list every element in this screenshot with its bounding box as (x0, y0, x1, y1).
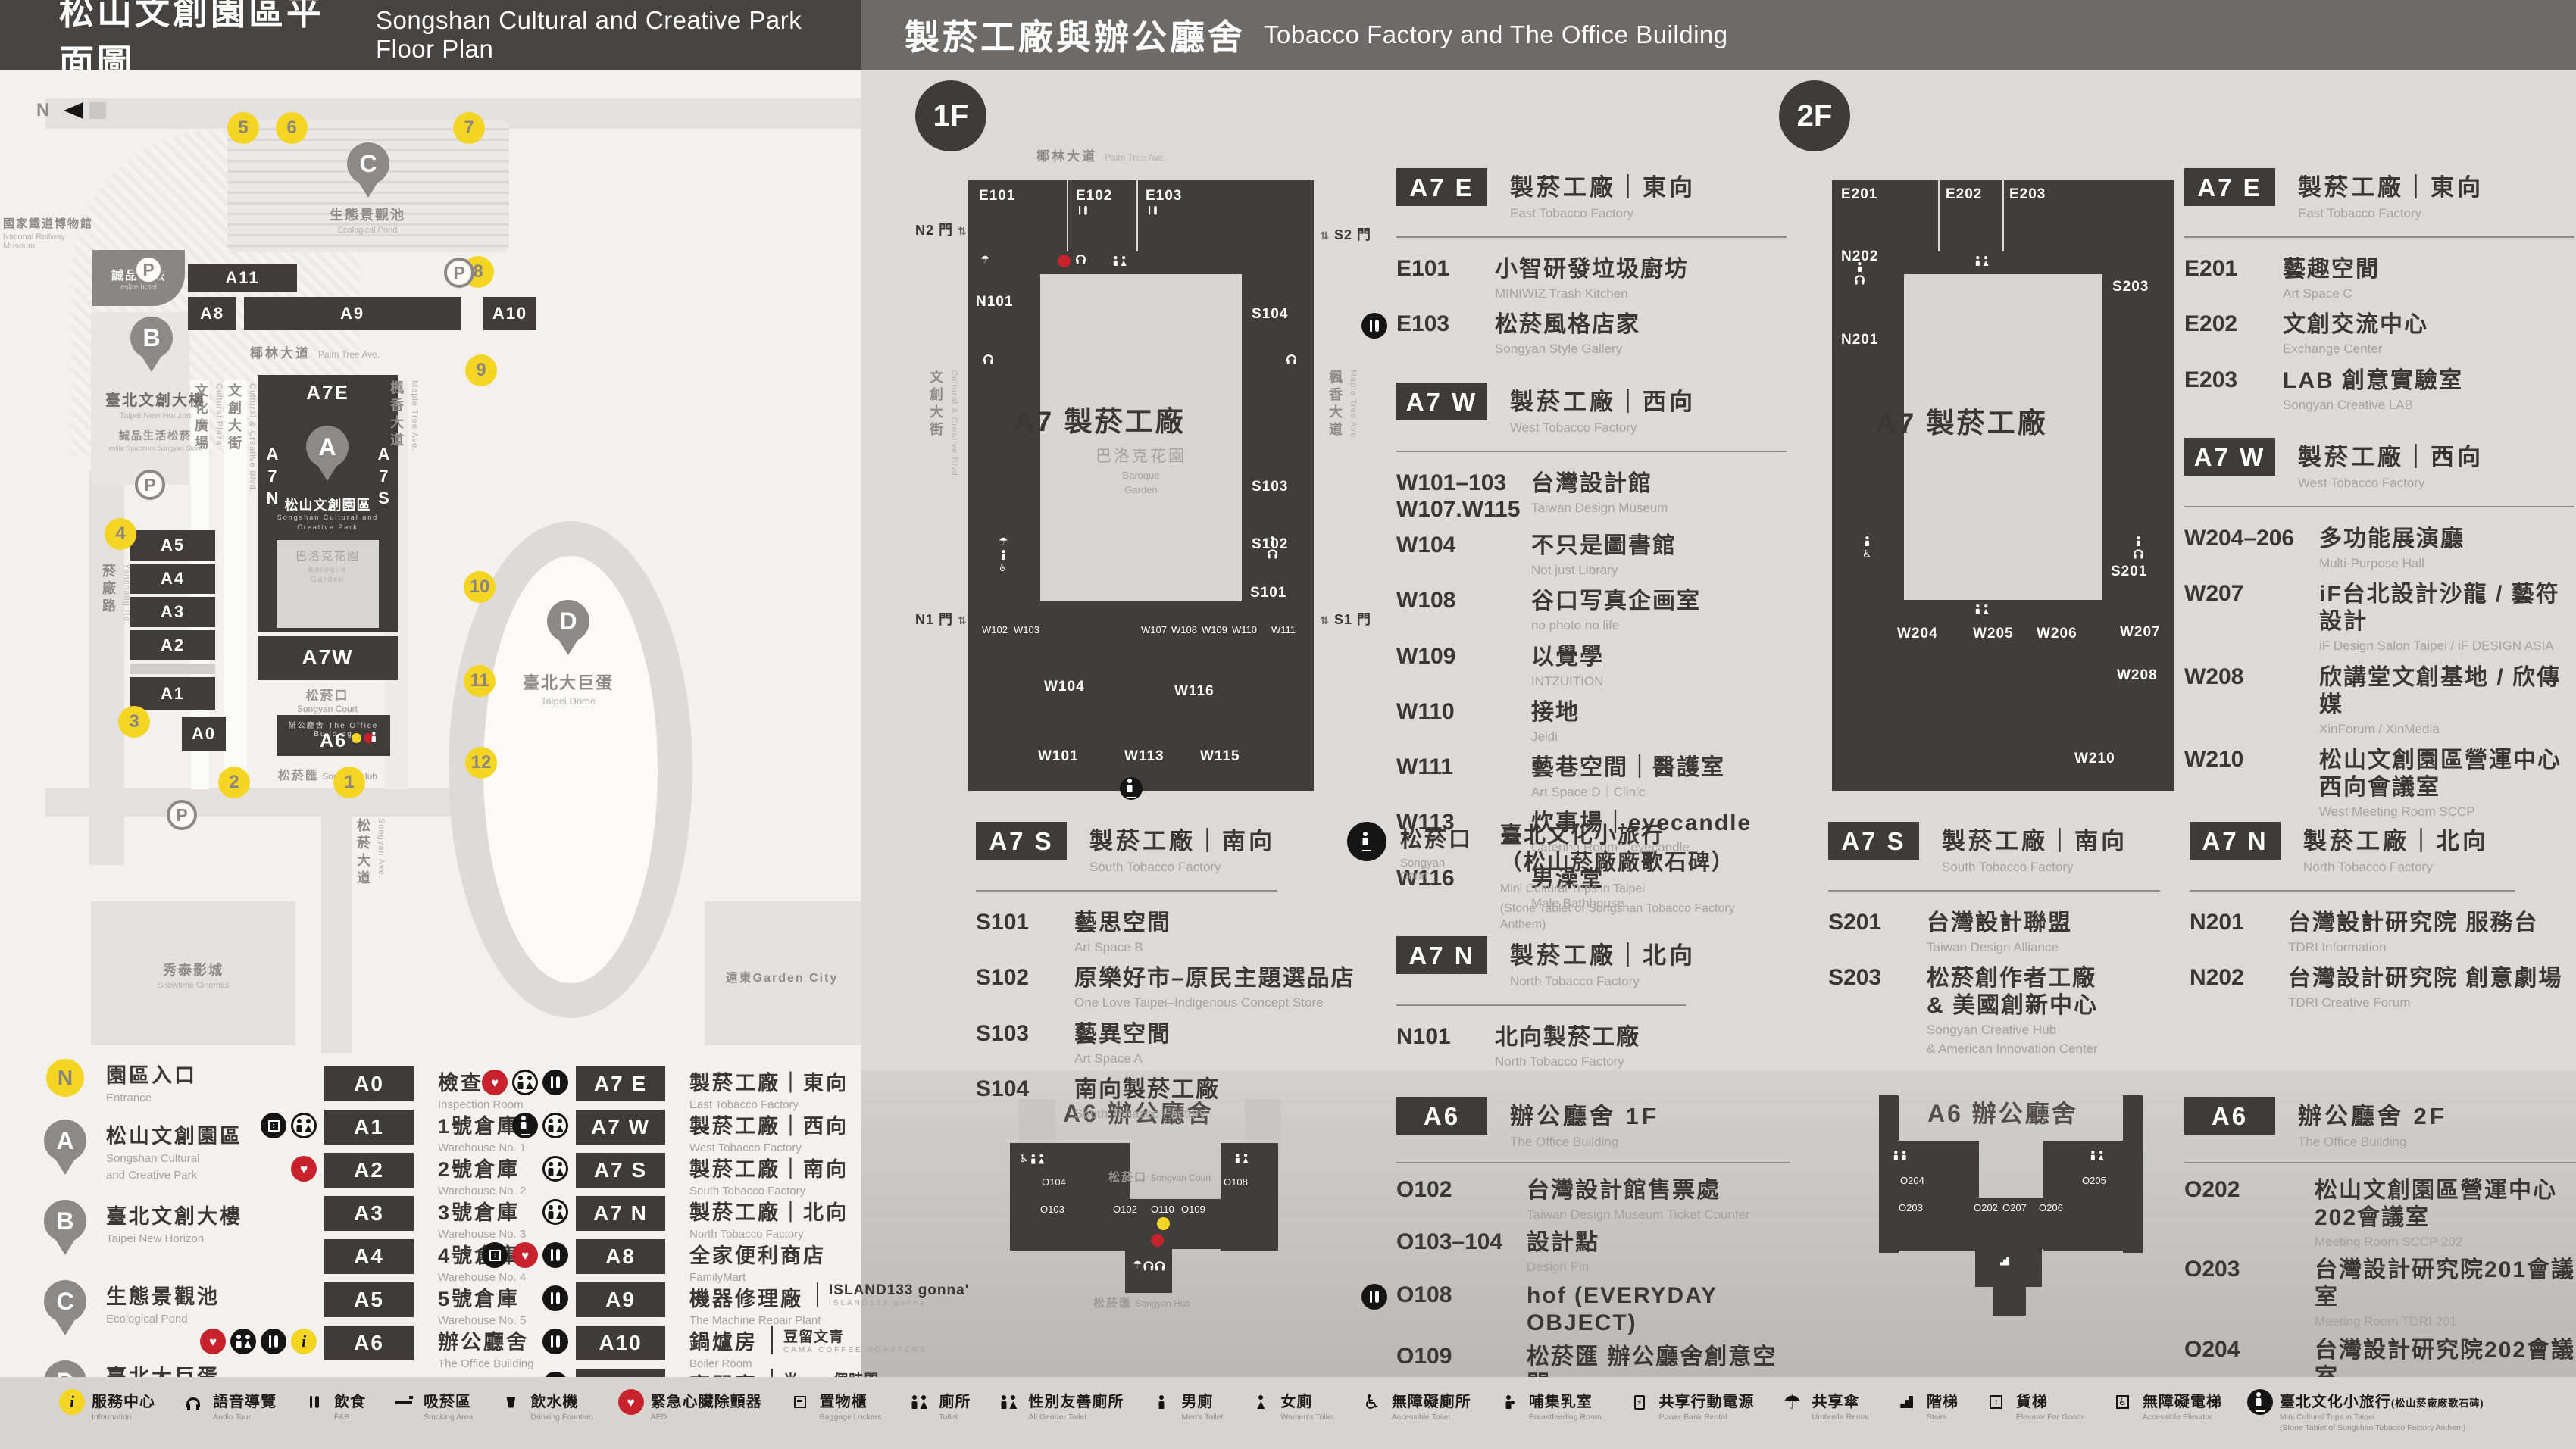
garden-city-label: 遠東Garden City (706, 967, 858, 985)
plan1-street-right: 楓香大道Maple Tree Ave. (1325, 370, 1358, 441)
amenity-text: 廁所Toilet (939, 1389, 971, 1422)
amenity-breastfeeding: 哺集乳室Breastfeeding Room (1496, 1389, 1602, 1422)
songyan-court-name: 松菸口Songyan Court (1400, 822, 1476, 933)
room-code-line: W111 (1396, 754, 1531, 781)
room-row: E201藝趣空間Art Space C (2184, 256, 2576, 301)
legend-brand: ISLAND133 gonna'ISLAND133 gonna' (817, 1282, 969, 1307)
legend-place-text: 松山文創園區Songshan Culturaland Creative Park (106, 1120, 242, 1183)
building-a5: A5 (130, 530, 215, 561)
room-name-zh: 松菸風格店家 (1495, 311, 1640, 339)
amenity-legend: i服務中心Information語音導覽Audio Tour飲食F&B吸菸區Sm… (0, 1377, 2576, 1449)
room-code: E201 (2184, 256, 2283, 301)
dome-label: 臺北大巨蛋 Taipei Dome (492, 670, 644, 707)
entrance-marker-icon: N (46, 1059, 84, 1097)
amenity-text: 語音導覽Audio Tour (213, 1389, 277, 1422)
legend-place-text: 臺北文創大樓Taipei New Horizon (106, 1200, 242, 1247)
room-code-line: O102 (1396, 1177, 1527, 1204)
showtime-label: 秀泰影城 Showtime Cinemas (125, 960, 261, 990)
header-right: 製菸工廠與辦公廳舍 Tobacco Factory and The Office… (861, 0, 2576, 70)
room-code: O202 (2184, 1177, 2315, 1250)
room-name-en: no photo no life (1531, 617, 1701, 633)
room-row: W110接地Jeidi (1396, 699, 1790, 745)
section-header: A7 S製菸工廠｜南向South Tobacco Factory (976, 822, 1370, 875)
court-zh: 松菸口 (1400, 822, 1476, 854)
building-a8: A8 (188, 297, 236, 330)
elevator-icon: ↕ (261, 1113, 286, 1138)
aed-icon: ♥ (200, 1329, 226, 1354)
room-row: O108hof (EVERYDAY OBJECT) (1396, 1282, 1790, 1337)
a6f1-hub-label: 松菸匯 Songyan Hub (1093, 1294, 1190, 1310)
room-label: W113 (1124, 748, 1165, 765)
room-code-line: W208 (2184, 664, 2319, 691)
gate-n1: N1 門 ⇅ (915, 609, 968, 629)
room-body: 台灣設計聯盟Taiwan Design Alliance (1927, 910, 2072, 955)
room-label: W101 (1038, 748, 1079, 765)
legend-text: 機器修理廠ISLAND133 gonna'ISLAND133 gonna'The… (689, 1282, 969, 1327)
room-name-zh: 台灣設計研究院 服務台 (2288, 910, 2538, 937)
legend-zh: 製菸工廠｜東向 (689, 1066, 849, 1096)
stairs-icon (1894, 1389, 1920, 1415)
room-name-zh: 台灣設計研究院201會議室 (2315, 1257, 2576, 1311)
amenity-fnb-plain: 飲食F&B (302, 1389, 366, 1422)
section-titles: 製菸工廠｜南向South Tobacco Factory (1089, 822, 1275, 875)
amenity-en: Women's Toilet (1280, 1413, 1333, 1422)
room-code: O203 (2184, 1257, 2315, 1329)
room-body: 藝趣空間Art Space C (2283, 256, 2380, 301)
plan-a6-2f: A6 辦公廳舍 O204 O205 O203 O202 O207 O206 (1873, 1084, 2184, 1320)
room-code: E202 (2184, 311, 2283, 357)
floor-1f-badge: 1F (915, 80, 986, 151)
room-label: W104 (1044, 679, 1085, 695)
room-row: O202松山文創園區營運中心202會議室Meeting Room SCCP 20… (2184, 1177, 2576, 1250)
legend-icons (542, 1285, 568, 1311)
legend-zh: 辦公廳舍 (438, 1326, 529, 1355)
floor-2f-badge: 2F (1779, 80, 1850, 151)
allgender-icon (996, 1389, 1021, 1415)
room-name-zh: 欣講堂文創基地 / 欣傳媒 (2319, 664, 2576, 719)
section-f2-a7e: A7 E製菸工廠｜東向East Tobacco FactoryE201藝趣空間A… (2184, 168, 2576, 423)
amenity-en: Accessible Toilet (1392, 1413, 1471, 1422)
legend-building-A7N: A7 N製菸工廠｜北向North Tobacco Factory (576, 1196, 849, 1241)
amenity-text: 女廁Women's Toilet (1280, 1389, 1333, 1422)
legend-text: 製菸工廠｜西向West Tobacco Factory (689, 1110, 849, 1154)
legend-zh-row: 製菸工廠｜東向 (689, 1066, 849, 1096)
amenity-text: 哺集乳室Breastfeeding Room (1529, 1389, 1602, 1422)
amenity-powerbank: ⚡共享行動電源Power Bank Rental (1627, 1389, 1755, 1422)
building-a7: A7E A7N A7S 松山文創園區 Songshan Cultural and… (258, 375, 398, 632)
room-code: W110 (1396, 699, 1531, 745)
aed-icon: ♥ (512, 1242, 538, 1268)
room-code-line: E202 (2184, 311, 2283, 338)
amenity-zh-main: 服務中心 (92, 1394, 155, 1410)
pond-label: 生態景觀池 Ecological Pond (288, 205, 447, 235)
section-f1-a7e: A7 E製菸工廠｜東向East Tobacco FactoryE101小智研發垃… (1396, 168, 1790, 367)
room-name-zh: 南向製菸工廠 (1074, 1076, 1220, 1104)
section-titles: 辦公廳舍 1FThe Office Building (1510, 1097, 1659, 1150)
legend-place-en2: and Creative Park (106, 1168, 242, 1183)
building-a0: A0 (182, 717, 226, 751)
room-name-zh: hof (EVERYDAY OBJECT) (1527, 1282, 1790, 1337)
room-row: W204–206多功能展演廳Multi-Purpose Hall (2184, 526, 2576, 571)
legend-badge: A5 (324, 1282, 414, 1317)
legend-text: 鍋爐房豆留文青CAMA COFFEE ROASTERSBoiler Room (689, 1326, 927, 1370)
toilet-icon (542, 1113, 568, 1138)
building-a4: A4 (130, 564, 215, 594)
amenity-en: Men's Toilet (1181, 1413, 1223, 1422)
map-marker-4: 4 (105, 518, 136, 550)
room-name-zh: 北向製菸工廠 (1495, 1024, 1640, 1051)
section-header: A7 E製菸工廠｜東向East Tobacco Factory (1396, 168, 1790, 221)
room-label: E203 (2009, 186, 2046, 203)
room-code: W208 (2184, 664, 2319, 737)
section-rule (1828, 890, 2160, 892)
plan2-center-label: A7 製菸工廠 (1876, 400, 2048, 441)
section-header: A7 W製菸工廠｜西向West Tobacco Factory (1396, 383, 1790, 436)
amenity-zh: 廁所 (939, 1389, 971, 1411)
legend-place-marker: N (44, 1059, 86, 1097)
room-label: S101 (1250, 585, 1286, 601)
toilet-icon (542, 1199, 568, 1225)
fnb-icon (542, 1329, 568, 1354)
room-body: 藝巷空間｜醫護室Art Space D｜Clinic (1531, 754, 1725, 800)
legend-text: 製菸工廠｜東向East Tobacco Factory (689, 1066, 849, 1111)
legend-zh-row: 全家便利商店 (689, 1239, 826, 1269)
amenity-women: 女廁Women's Toilet (1248, 1389, 1333, 1422)
legend-text: 5號倉庫Warehouse No. 5 (438, 1282, 526, 1327)
building-a2: A2 (130, 630, 215, 660)
room-name-en: West Meeting Room SCCP (2319, 804, 2562, 820)
audio-icon (180, 1389, 206, 1415)
room-body: 以覺學INTZUITION (1531, 644, 1604, 689)
room-code-line: O202 (2184, 1177, 2315, 1204)
amenity-stairs: 階梯Stairs (1894, 1389, 1959, 1422)
section-header: A6辦公廳舍 2FThe Office Building (2184, 1097, 2576, 1150)
room-code: W207 (2184, 581, 2319, 654)
legend-place-B: B臺北文創大樓Taipei New Horizon (44, 1200, 242, 1266)
legend-place-zh: 生態景觀池 (106, 1280, 220, 1310)
room-code: N202 (2190, 965, 2288, 1010)
room-label: E201 (1841, 186, 1877, 203)
room-code-line: W101–103 (1396, 470, 1531, 497)
amenity-zh: 階梯 (1927, 1389, 1959, 1411)
amenity-zh-main: 共享傘 (1812, 1394, 1860, 1410)
amenity-text: 男廁Men's Toilet (1181, 1389, 1223, 1422)
room-name-en: Art Space A (1074, 1051, 1171, 1066)
room-code: S201 (1828, 910, 1927, 955)
north-label: N (36, 100, 49, 121)
legend-zh: 機器修理廠 (689, 1282, 803, 1312)
room-name-en: Taiwan Design Museum (1531, 500, 1668, 516)
room-row: S104南向製菸工廠South Tobacco Factory (976, 1076, 1370, 1122)
room-code-line: W207 (2184, 581, 2319, 607)
amenity-zh-main: 飲食 (334, 1394, 366, 1410)
amenity-zh: 哺集乳室 (1529, 1389, 1602, 1411)
amenity-text: 貨梯Elevator For Goods (2016, 1389, 2085, 1422)
breastfeeding-icon (1496, 1389, 1522, 1415)
building-a11: A11 (188, 264, 297, 292)
room-row: S103藝異空間Art Space A (976, 1021, 1370, 1066)
plan1-garden-label: 巴洛克花園 Baroque Garden (1065, 444, 1217, 495)
room-label: O204 (1900, 1175, 1924, 1186)
room-name-en: North Tobacco Factory (1495, 1054, 1640, 1070)
amenity-en: All Gender Toilet (1028, 1413, 1124, 1422)
room-body: LAB 創意實驗室Songyan Creative LAB (2283, 367, 2463, 413)
room-body: 松山文創園區營運中心西向會議室West Meeting Room SCCP (2319, 747, 2562, 820)
legend-text: 3號倉庫Warehouse No. 3 (438, 1196, 526, 1241)
legend-building-A8: ↕♥A8全家便利商店FamilyMart (576, 1239, 826, 1284)
amenity-zh-main: 貨梯 (2016, 1394, 2048, 1410)
info-icon (352, 733, 361, 743)
room-row: S203松菸創作者工廠& 美國創新中心Songyan Creative Hub&… (1828, 965, 2222, 1057)
legend-zh-row: 5號倉庫 (438, 1282, 526, 1312)
section-f2-a7w: A7 W製菸工廠｜西向West Tobacco FactoryW204–206多… (2184, 438, 2576, 829)
yanchang-rd-label: 菸廠路Yanchang Rd. (98, 564, 131, 625)
amenity-zh-main: 臺北文化小旅行 (2280, 1394, 2391, 1410)
amenity-zh-main: 女廁 (1280, 1394, 1312, 1410)
room-code-line: N101 (1396, 1024, 1495, 1051)
fnb-icon (302, 1389, 327, 1415)
room-name-zh: 台灣設計館 (1531, 470, 1668, 498)
room-row: W108谷口写真企画室no photo no life (1396, 588, 1790, 633)
room-name-en: MINIWIZ Trash Kitchen (1495, 286, 1689, 301)
room-row: S102原樂好市–原民主題選品店One Love Taipei–Indigeno… (976, 965, 1370, 1010)
section-title-en: The Office Building (2298, 1135, 2447, 1150)
section-header: A7 N製菸工廠｜北向North Tobacco Factory (2190, 822, 2576, 875)
road-songyan-ave (321, 817, 352, 1053)
legend-zh: 5號倉庫 (438, 1282, 520, 1312)
map-marker-5: 5 (227, 112, 259, 144)
section-badge: A6 (2184, 1097, 2275, 1135)
legend-zh-row: 辦公廳舍 (438, 1326, 533, 1355)
elevator-icon: ↕ (482, 1242, 508, 1268)
legend-zh-row: 鍋爐房豆留文青CAMA COFFEE ROASTERS (689, 1326, 927, 1355)
section-badge: A6 (1396, 1097, 1487, 1135)
room-row: W208欣講堂文創基地 / 欣傳媒XinForum / XinMedia (2184, 664, 2576, 737)
room-row: O103–104設計點Design Pin (1396, 1229, 1790, 1275)
section-title-en: South Tobacco Factory (1089, 860, 1275, 875)
amenity-zh: 無障礙廁所 (1392, 1389, 1471, 1411)
amenity-zh: 臺北文化小旅行(松山菸廠廠歌石碑) (2280, 1389, 2484, 1411)
section-title-en: East Tobacco Factory (1510, 206, 1696, 221)
toilet-icon (906, 1389, 932, 1415)
section-title-en: Tobacco Factory and The Office Building (1264, 20, 1728, 49)
building-a3: A3 (130, 597, 215, 627)
room-code: E101 (1396, 256, 1495, 301)
room-name-zh: 不只是圖書館 (1531, 532, 1677, 560)
room-row: O102台灣設計館售票處Taiwan Design Museum Ticket … (1396, 1177, 1790, 1223)
room-row: N201台灣設計研究院 服務台TDRI Information (2190, 910, 2576, 955)
room-body: 北向製菸工廠North Tobacco Factory (1495, 1024, 1640, 1070)
amenity-text: 性別友善廁所All Gender Toilet (1028, 1389, 1124, 1422)
section-title-en: South Tobacco Factory (1942, 860, 2127, 875)
room-label: W206 (2037, 626, 2077, 642)
room-code: S104 (976, 1076, 1074, 1122)
room-label: O108 (1224, 1176, 1248, 1188)
amenity-umbrella: ☂共享傘Umbrella Rental (1780, 1389, 1869, 1422)
section-badge: A7 N (2190, 822, 2281, 860)
room-label: W205 (1973, 626, 2014, 642)
legend-zh: 製菸工廠｜北向 (689, 1196, 849, 1226)
room-name-en: Taiwan Design Alliance (1927, 939, 2072, 955)
room-body: 台灣設計館Taiwan Design Museum (1531, 470, 1668, 523)
section-title-zh: 辦公廳舍 1F (1510, 1097, 1659, 1131)
amenity-en: Drinking Fountain (530, 1413, 592, 1422)
room-name-zh: 多功能展演廳 (2319, 526, 2465, 553)
room-name-zh: 以覺學 (1531, 644, 1604, 671)
toilet-icon (542, 1156, 568, 1182)
room-name-zh: 松山文創園區營運中心 (2319, 747, 2562, 774)
section-title-zh: 製菸工廠｜東向 (1510, 168, 1696, 202)
room-code: S102 (976, 965, 1074, 1010)
legend-icons: ♥i (200, 1329, 317, 1354)
amenity-zh: 無障礙電梯 (2143, 1389, 2222, 1411)
amenity-aed: ♥緊急心臟除顫器AED (618, 1389, 762, 1422)
section-rule (2184, 1162, 2576, 1163)
legend-icons (512, 1113, 568, 1138)
room-label: S104 (1252, 306, 1288, 323)
room-code: N201 (2190, 910, 2288, 955)
room-name-zh2: 西向會議室 (2319, 774, 2562, 801)
toilet-icon (291, 1113, 317, 1138)
room-code: W204–206 (2184, 526, 2319, 571)
room-code: E103 (1396, 311, 1495, 357)
room-label: S203 (2112, 279, 2149, 295)
amenity-en: Umbrella Rental (1812, 1413, 1869, 1422)
room-row: O203台灣設計研究院201會議室Meeting Room TDRI 201 (2184, 1257, 2576, 1329)
amenity-en: Elevator For Goods (2016, 1413, 2085, 1422)
court-item-zh2: （松山菸廠廠歌石碑） (1500, 849, 1783, 876)
room-code-line2: W107.W115 (1396, 497, 1531, 523)
legend-building-A1: ↕A11號倉庫Warehouse No. 1 (324, 1110, 526, 1154)
legend-zh-row: 製菸工廠｜南向 (689, 1153, 849, 1182)
legend-place-marker: A (44, 1120, 86, 1186)
court-icon (1354, 829, 1380, 854)
legend-place-zh: 松山文創園區 (106, 1120, 242, 1149)
pin-d: D (547, 600, 589, 667)
legend-building-A5: A55號倉庫Warehouse No. 5 (324, 1282, 526, 1327)
room-name-en: Meeting Room TDRI 201 (2315, 1313, 2576, 1329)
room-code-line: O109 (1396, 1344, 1527, 1370)
pin-c: C (347, 142, 389, 209)
section-title-zh: 製菸工廠｜北向 (1510, 936, 1696, 970)
room-code-line: O108 (1396, 1282, 1527, 1309)
amenity-text: 飲水機Drinking Fountain (530, 1389, 592, 1422)
room-name-en: Not just Library (1531, 562, 1677, 578)
room-code-line: N202 (2190, 965, 2288, 992)
section-header: A7 S製菸工廠｜南向South Tobacco Factory (1828, 822, 2222, 875)
room-label: O207 (2002, 1202, 2027, 1213)
room-label: W208 (2117, 667, 2158, 684)
locker-icon (787, 1389, 813, 1415)
room-name-en: Jeidi (1531, 729, 1580, 745)
room-row: W210松山文創園區營運中心西向會議室West Meeting Room SCC… (2184, 747, 2576, 820)
room-name-en: XinForum / XinMedia (2319, 721, 2576, 737)
legend-icons: ♥ (291, 1156, 317, 1182)
room-code-line: W110 (1396, 699, 1531, 726)
legend-place-N: N園區入口Entrance (44, 1059, 242, 1106)
room-name-en: Taiwan Design Museum Ticket Counter (1527, 1207, 1750, 1223)
room-label: O110 (1151, 1204, 1174, 1215)
section-title-zh: 製菸工廠｜西向 (1510, 383, 1696, 417)
room-row: W101–103W107.W115台灣設計館Taiwan Design Muse… (1396, 470, 1790, 523)
section-title-zh: 製菸工廠｜東向 (2298, 168, 2484, 202)
section-title-en: North Tobacco Factory (1510, 974, 1696, 989)
goods-elevator-icon: ↕ (1984, 1389, 2009, 1415)
room-name-zh: iF台北設計沙龍 / 藝符設計 (2319, 581, 2576, 635)
a6f2-stem2 (1993, 1287, 2026, 1316)
plan-2f: E201 E202 E203 N202 N201 S203 S201 W204 … (1832, 180, 2174, 794)
north-box (89, 102, 106, 119)
aed-icon: ♥ (291, 1156, 317, 1182)
legend-text: 辦公廳舍The Office Building (438, 1326, 533, 1370)
amenity-zh: 共享傘 (1812, 1389, 1869, 1411)
amenity-audio: 語音導覽Audio Tour (180, 1389, 277, 1422)
section-rule (2190, 890, 2515, 892)
room-name-en: Art Space B (1074, 939, 1171, 955)
legend-badge: A2 (324, 1153, 414, 1188)
amenity-zh: 置物櫃 (820, 1389, 882, 1411)
room-name-en: Songyan Creative Hub (1927, 1022, 2098, 1038)
section-rule (2184, 506, 2574, 507)
building-a10: A10 (483, 297, 536, 330)
section-titles: 製菸工廠｜西向West Tobacco Factory (1510, 383, 1696, 436)
amenity-zh: 飲食 (334, 1389, 366, 1411)
legend-badge: A4 (324, 1239, 414, 1274)
amenity-water: 飲水機Drinking Fountain (498, 1389, 592, 1422)
map-marker-9: 9 (465, 354, 497, 386)
map-marker-6: 6 (276, 112, 308, 144)
parking-marker: P (167, 800, 197, 830)
gate-s1: ⇅ S1 門 (1320, 609, 1371, 629)
legend-en: The Office Building (438, 1357, 533, 1370)
a6f1-court-label: 松菸口 Songyan Court (1108, 1169, 1211, 1185)
legend-zh-row: 製菸工廠｜北向 (689, 1196, 849, 1226)
legend-place-zh: 臺北文創大樓 (106, 1200, 242, 1229)
court-item-en1: Mini Cultural Trips in Taipei (1500, 882, 1783, 898)
pin-a: A (306, 426, 349, 492)
building-a6: 辦公廳舍 The Office Building A6 (277, 715, 390, 756)
room-body: 藝思空間Art Space B (1074, 910, 1171, 955)
room-label: E102 (1076, 188, 1112, 205)
room-label: W102 (982, 624, 1008, 635)
legend-building-A2: ♥A22號倉庫Warehouse No. 2 (324, 1153, 526, 1198)
room-name-zh: LAB 創意實驗室 (2283, 367, 2463, 395)
amenity-text: 無障礙電梯Accessible Elevator (2143, 1389, 2222, 1422)
amenity-zh-main: 男廁 (1181, 1394, 1213, 1410)
room-name-en: One Love Taipei–Indigenous Concept Store (1074, 995, 1355, 1010)
aed-icon (1151, 1234, 1164, 1247)
amenity-toilet-plain: 廁所Toilet (906, 1389, 971, 1422)
room-body: 文創交流中心Exchange Center (2283, 311, 2428, 357)
room-row: N202台灣設計研究院 創意劇場TDRI Creative Forum (2190, 965, 2576, 1010)
room-body: 不只是圖書館Not just Library (1531, 532, 1677, 578)
songyan-ave-label: 松菸大道Songyan Ave. (353, 818, 386, 888)
room-name-zh: 松菸創作者工廠 (1927, 965, 2098, 992)
amenity-text: 臺北文化小旅行(松山菸廠廠歌石碑)Mini Cultural Trips in … (2280, 1389, 2484, 1432)
room-label: W109 (1202, 624, 1227, 635)
amenity-en: Breastfeeding Room (1529, 1413, 1602, 1422)
legend-zh: 鍋爐房 (689, 1326, 758, 1355)
legend-icons: ↕♥ (482, 1242, 568, 1268)
legend-place-text: 園區入口Entrance (106, 1059, 197, 1106)
room-row: W207iF台北設計沙龍 / 藝符設計iF Design Salon Taipe… (2184, 581, 2576, 654)
amenity-allgender: 性別友善廁所All Gender Toilet (996, 1389, 1124, 1422)
page-title-en: Songshan Cultural and Creative Park Floo… (376, 6, 861, 64)
room-row: E202文創交流中心Exchange Center (2184, 311, 2576, 357)
amenity-goods-elevator: ↕貨梯Elevator For Goods (1984, 1389, 2085, 1422)
legend-badge: A3 (324, 1196, 414, 1231)
legend-place-marker: B (44, 1200, 86, 1266)
